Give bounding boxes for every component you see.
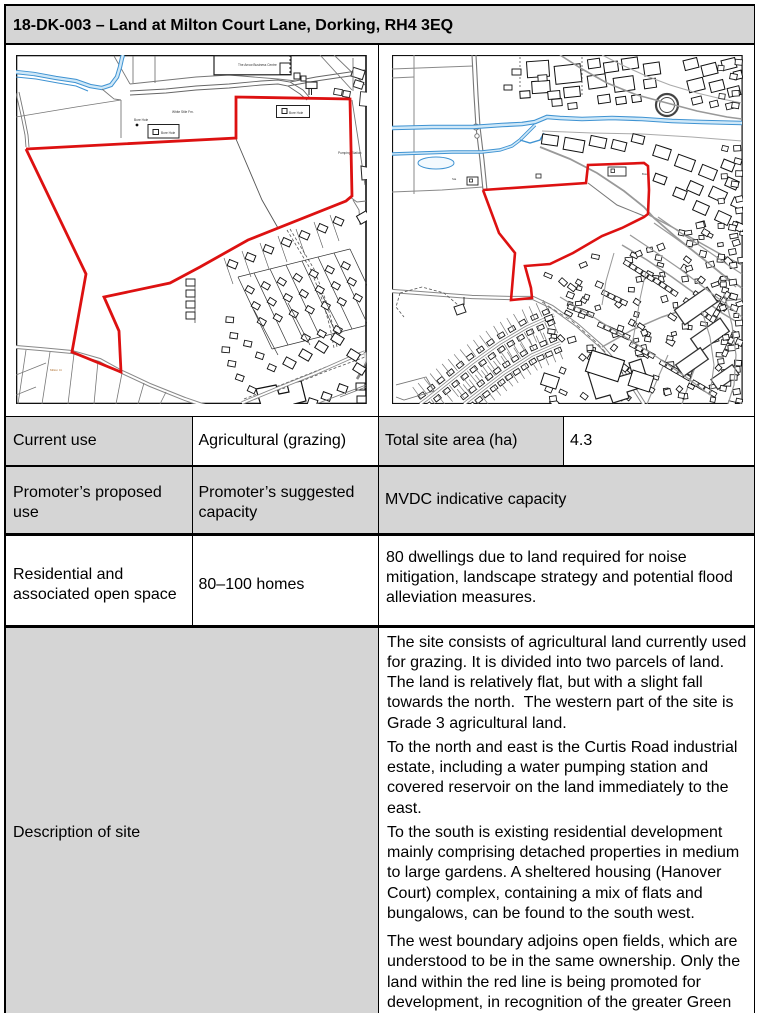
svg-text:White Stile Fm.: White Stile Fm.: [172, 110, 194, 114]
svg-text:Bore Hole: Bore Hole: [289, 111, 303, 115]
svg-text:Bore Hole: Bore Hole: [161, 131, 175, 135]
svg-text:Sta: Sta: [452, 177, 457, 181]
svg-text:The Arrow Business Centre: The Arrow Business Centre: [238, 63, 277, 67]
svg-text:Milton Ct: Milton Ct: [50, 368, 62, 372]
svg-text:Bore Hole: Bore Hole: [134, 118, 148, 122]
